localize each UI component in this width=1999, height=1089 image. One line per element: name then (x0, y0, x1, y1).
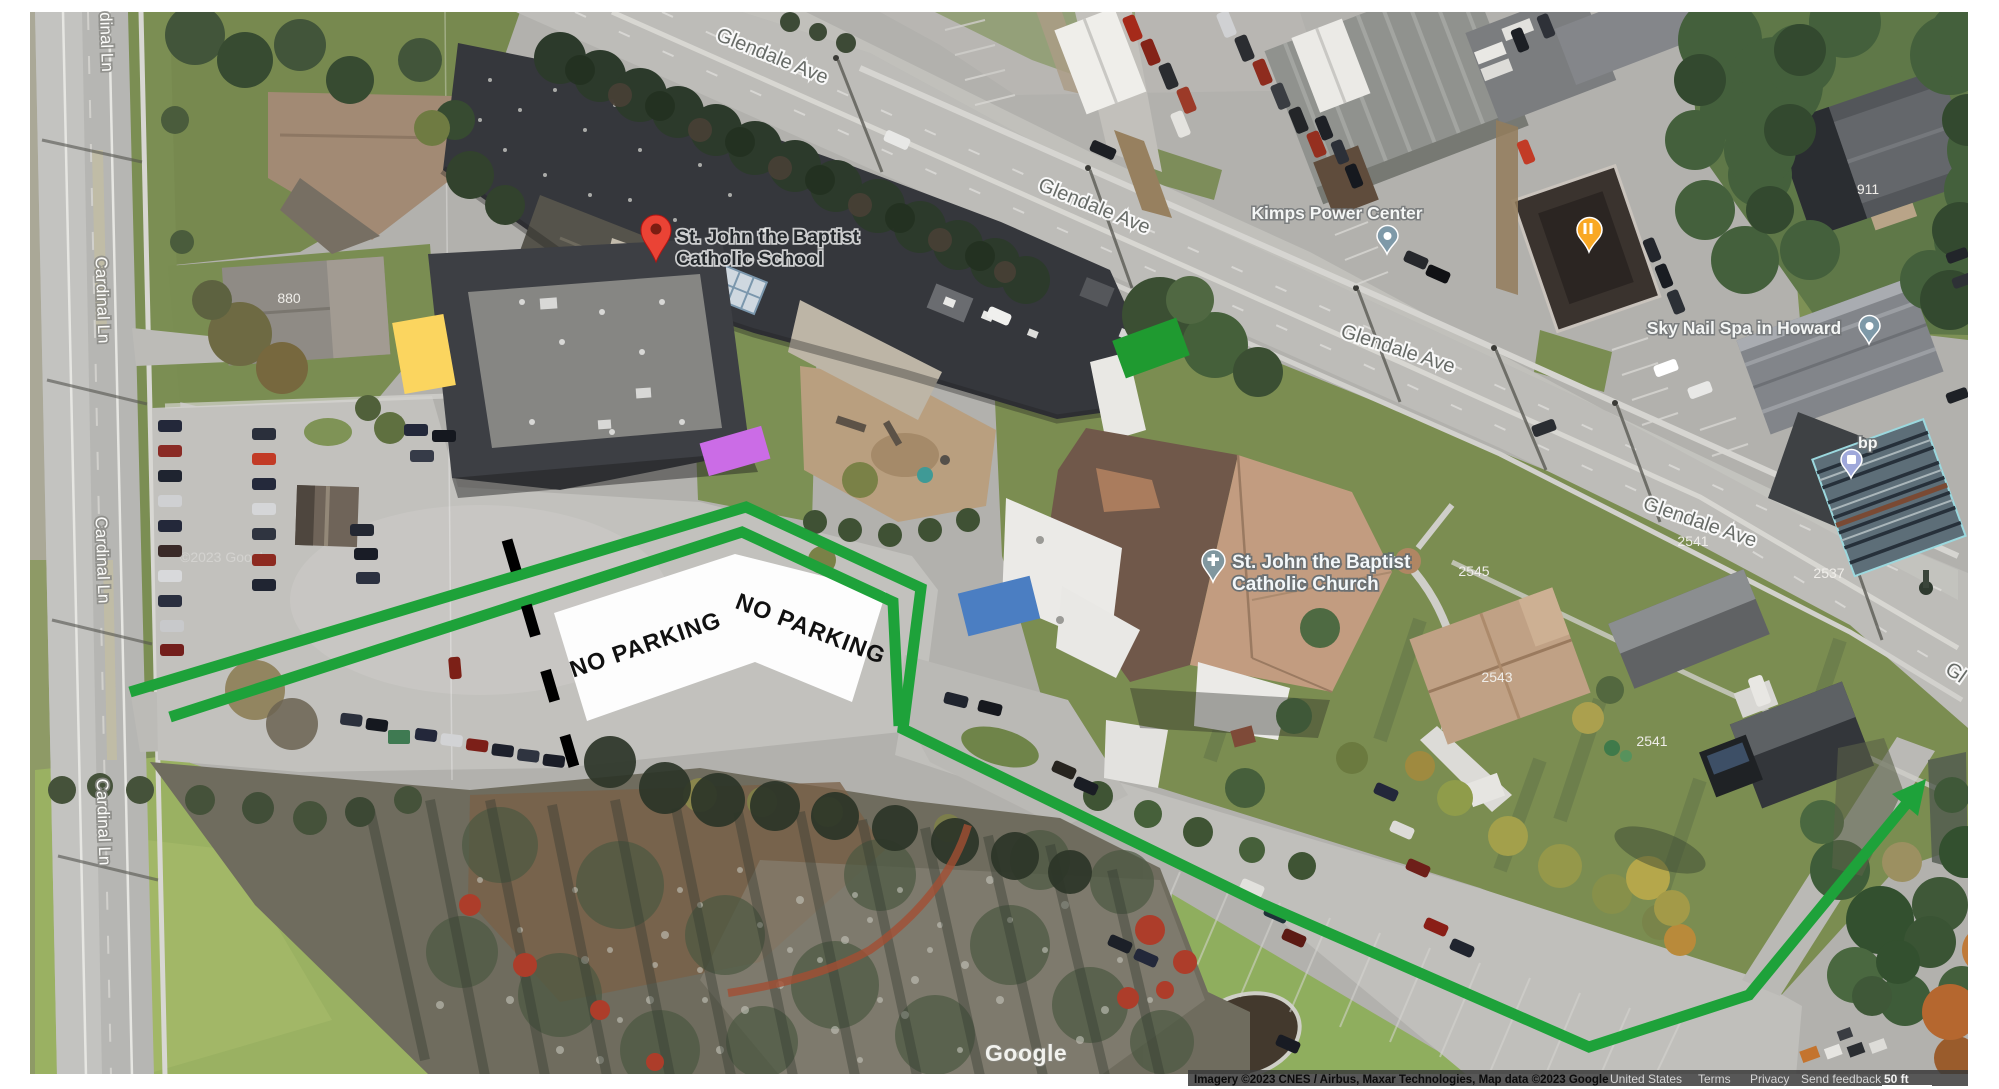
svg-text:2537: 2537 (1813, 565, 1844, 581)
svg-text:United States: United States (1610, 1072, 1682, 1086)
svg-text:2541: 2541 (1636, 733, 1667, 749)
svg-text:911: 911 (1857, 181, 1880, 197)
svg-text:dinal Ln: dinal Ln (96, 12, 117, 72)
svg-text:Cardinal Ln: Cardinal Ln (91, 256, 113, 344)
svg-text:Terms: Terms (1698, 1072, 1731, 1086)
svg-text:Catholic Church: Catholic Church (1232, 574, 1379, 595)
svg-text:Send feedback: Send feedback (1801, 1072, 1882, 1086)
svg-text:Catholic School: Catholic School (676, 248, 823, 270)
svg-text:50 ft: 50 ft (1884, 1072, 1909, 1086)
svg-text:Kimps Power Center: Kimps Power Center (1251, 203, 1422, 223)
svg-text:880: 880 (277, 290, 301, 306)
svg-text:Google: Google (985, 1040, 1067, 1066)
svg-text:Sky Nail Spa in Howard: Sky Nail Spa in Howard (1647, 318, 1842, 338)
svg-text:2545: 2545 (1458, 563, 1489, 579)
svg-text:St. John the Baptist: St. John the Baptist (1232, 552, 1411, 573)
svg-text:St. John the Baptist: St. John the Baptist (676, 226, 860, 248)
svg-text:Privacy: Privacy (1750, 1072, 1789, 1086)
svg-text:Imagery ©2023 CNES / Airbus, M: Imagery ©2023 CNES / Airbus, Maxar Techn… (1194, 1074, 1608, 1086)
svg-text:Cardinal Ln: Cardinal Ln (92, 778, 114, 866)
svg-text:2541: 2541 (1677, 533, 1708, 549)
svg-text:bp: bp (1858, 435, 1878, 452)
svg-text:Cardinal Ln: Cardinal Ln (91, 516, 113, 604)
svg-text:2543: 2543 (1481, 669, 1512, 685)
